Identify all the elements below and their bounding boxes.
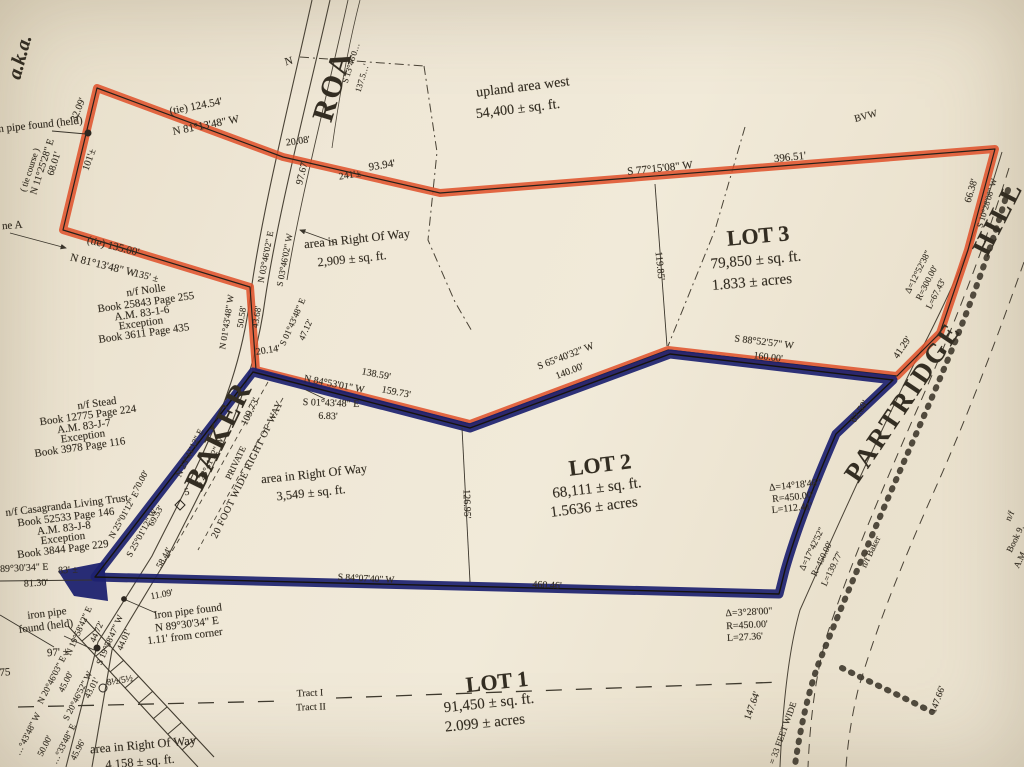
dim-66-38: 66.38' — [964, 178, 981, 204]
nf-baker: n/f Baker — [860, 535, 883, 569]
dim-20-14: 20.14' — [255, 344, 281, 358]
area-row1-value: 4,158 ± sq. ft. — [105, 753, 175, 767]
dim-70-00: 70.00' — [132, 469, 150, 492]
tract-ii: Tract II — [296, 702, 326, 713]
lot3-acres: 1.833 ± acres — [711, 272, 792, 294]
bearing-n811348-1: N 81°13'48" W — [172, 114, 240, 138]
bearing-n195842: N 19°58'42" E — [64, 605, 94, 657]
dim-75: 75 — [0, 667, 11, 679]
iron-pipe-bl-2: found (held) — [18, 618, 74, 636]
bvw-label: BVW — [853, 109, 878, 125]
dim-62-59: 62.59' — [849, 399, 871, 425]
bearing-s893034: S 89°30'34" E — [0, 563, 49, 576]
tree-size: 8½/5½ — [106, 675, 134, 689]
dim-140-00: 140.00' — [555, 362, 586, 382]
lot1-acres: 2.099 ± acres — [444, 712, 525, 735]
dim-41-29: 41.29' — [892, 335, 914, 361]
bearing-bottom: S 84°07'40" W — [337, 574, 394, 586]
aka-note: a.k.a. — [5, 33, 36, 82]
dim-126-95: 126.95' — [460, 489, 471, 519]
station-5: 5 — [184, 488, 191, 499]
dim-396-51: 396.51' — [773, 151, 806, 165]
dim-101: 101'± — [81, 148, 98, 172]
curve2-arc: L=112.41' — [771, 502, 813, 516]
area-row3-label: area in Right Of Way — [260, 462, 367, 486]
bearing-n845301: N 84°53'01" W — [303, 374, 365, 396]
curve4-delta: Δ=3°28'00" — [725, 607, 772, 619]
dim-138-59: 138.59' — [361, 367, 392, 382]
dim-43-68: 43.68' — [251, 305, 263, 328]
dim-81-30: 81.30' — [24, 578, 49, 589]
road-dim-top: 137.5…' — [354, 63, 371, 93]
dim-20-08: 20.08' — [285, 135, 310, 148]
dim-119-85: 119.85' — [653, 251, 666, 281]
area-row3-value: 3,549 ± sq. ft. — [276, 483, 346, 503]
dim-460-46: 460.46' — [532, 580, 562, 592]
dim-241: 241'± — [338, 169, 362, 182]
north-mark: N — [284, 56, 295, 69]
dim-159-73: 159.73' — [381, 385, 412, 400]
dim-11-09: 11.09' — [150, 589, 174, 602]
curve4-arc: L=27.36' — [727, 632, 764, 644]
lot3-title: LOT 3 — [726, 222, 790, 249]
upland-area-value: 54,400 ± sq. ft. — [475, 98, 561, 122]
dim-97-67: 97.67' — [295, 160, 311, 186]
bearing-s034602: S 03°46'02" W — [275, 233, 294, 287]
dim-83: 83' ± — [58, 565, 78, 576]
tie-135-00: (tie) 135.00' — [86, 235, 140, 259]
dim-147-64: 147.64' — [743, 691, 762, 722]
bearing-s014348-mid: S 01°43'48" E — [303, 398, 360, 410]
dim-147-66: 147.66' — [930, 685, 948, 714]
bearing-s885257: S 88°52'57" W — [734, 334, 794, 351]
tract-i: Tract I — [297, 689, 324, 700]
road-33ft: = 33 FEET WIDE — [768, 701, 799, 766]
dim-160-00: 160.00' — [753, 351, 783, 364]
dim-6-83: 6.83' — [318, 412, 338, 423]
lot3-area: 79,850 ± sq. ft. — [710, 250, 802, 273]
dim-45-96: 45.96' — [69, 738, 87, 762]
bearing-n034602: N 03°46'02" E — [257, 230, 276, 283]
dim-50-58: 50.58' — [236, 305, 248, 328]
bearing-n811348-2: N 81°13'48" W — [69, 252, 137, 279]
lot2-title: LOT 2 — [568, 450, 633, 479]
iron-pipe-note-top: iron pipe found (held) — [0, 115, 83, 136]
plat-labels: a.k.a.( tie course )N 11°25'28" E68.01'3… — [0, 0, 1024, 767]
bearing-s771508: S 77°15'08" W — [627, 160, 693, 178]
tie-124-54: (tie) 124.54' — [169, 97, 223, 118]
line-a-label: ne A — [2, 220, 23, 232]
abutter-right-1: n/f — [1004, 510, 1016, 523]
dim-47-12: 47.12' — [297, 318, 314, 342]
area-row2-label: area in Right Of Way — [303, 227, 410, 251]
dim-58-44: 58.44' — [155, 546, 173, 569]
survey-plat-map: a.k.a.( tie course )N 11°25'28" E68.01'3… — [0, 0, 1024, 767]
area-row1-label: area in Right Of Way — [89, 734, 196, 756]
bearing-n014348w: N 01°43'48" W — [218, 294, 236, 350]
area-row2-value: 2,909 ± sq. ft. — [317, 249, 387, 269]
dim-93-94: 93.94' — [368, 158, 396, 173]
